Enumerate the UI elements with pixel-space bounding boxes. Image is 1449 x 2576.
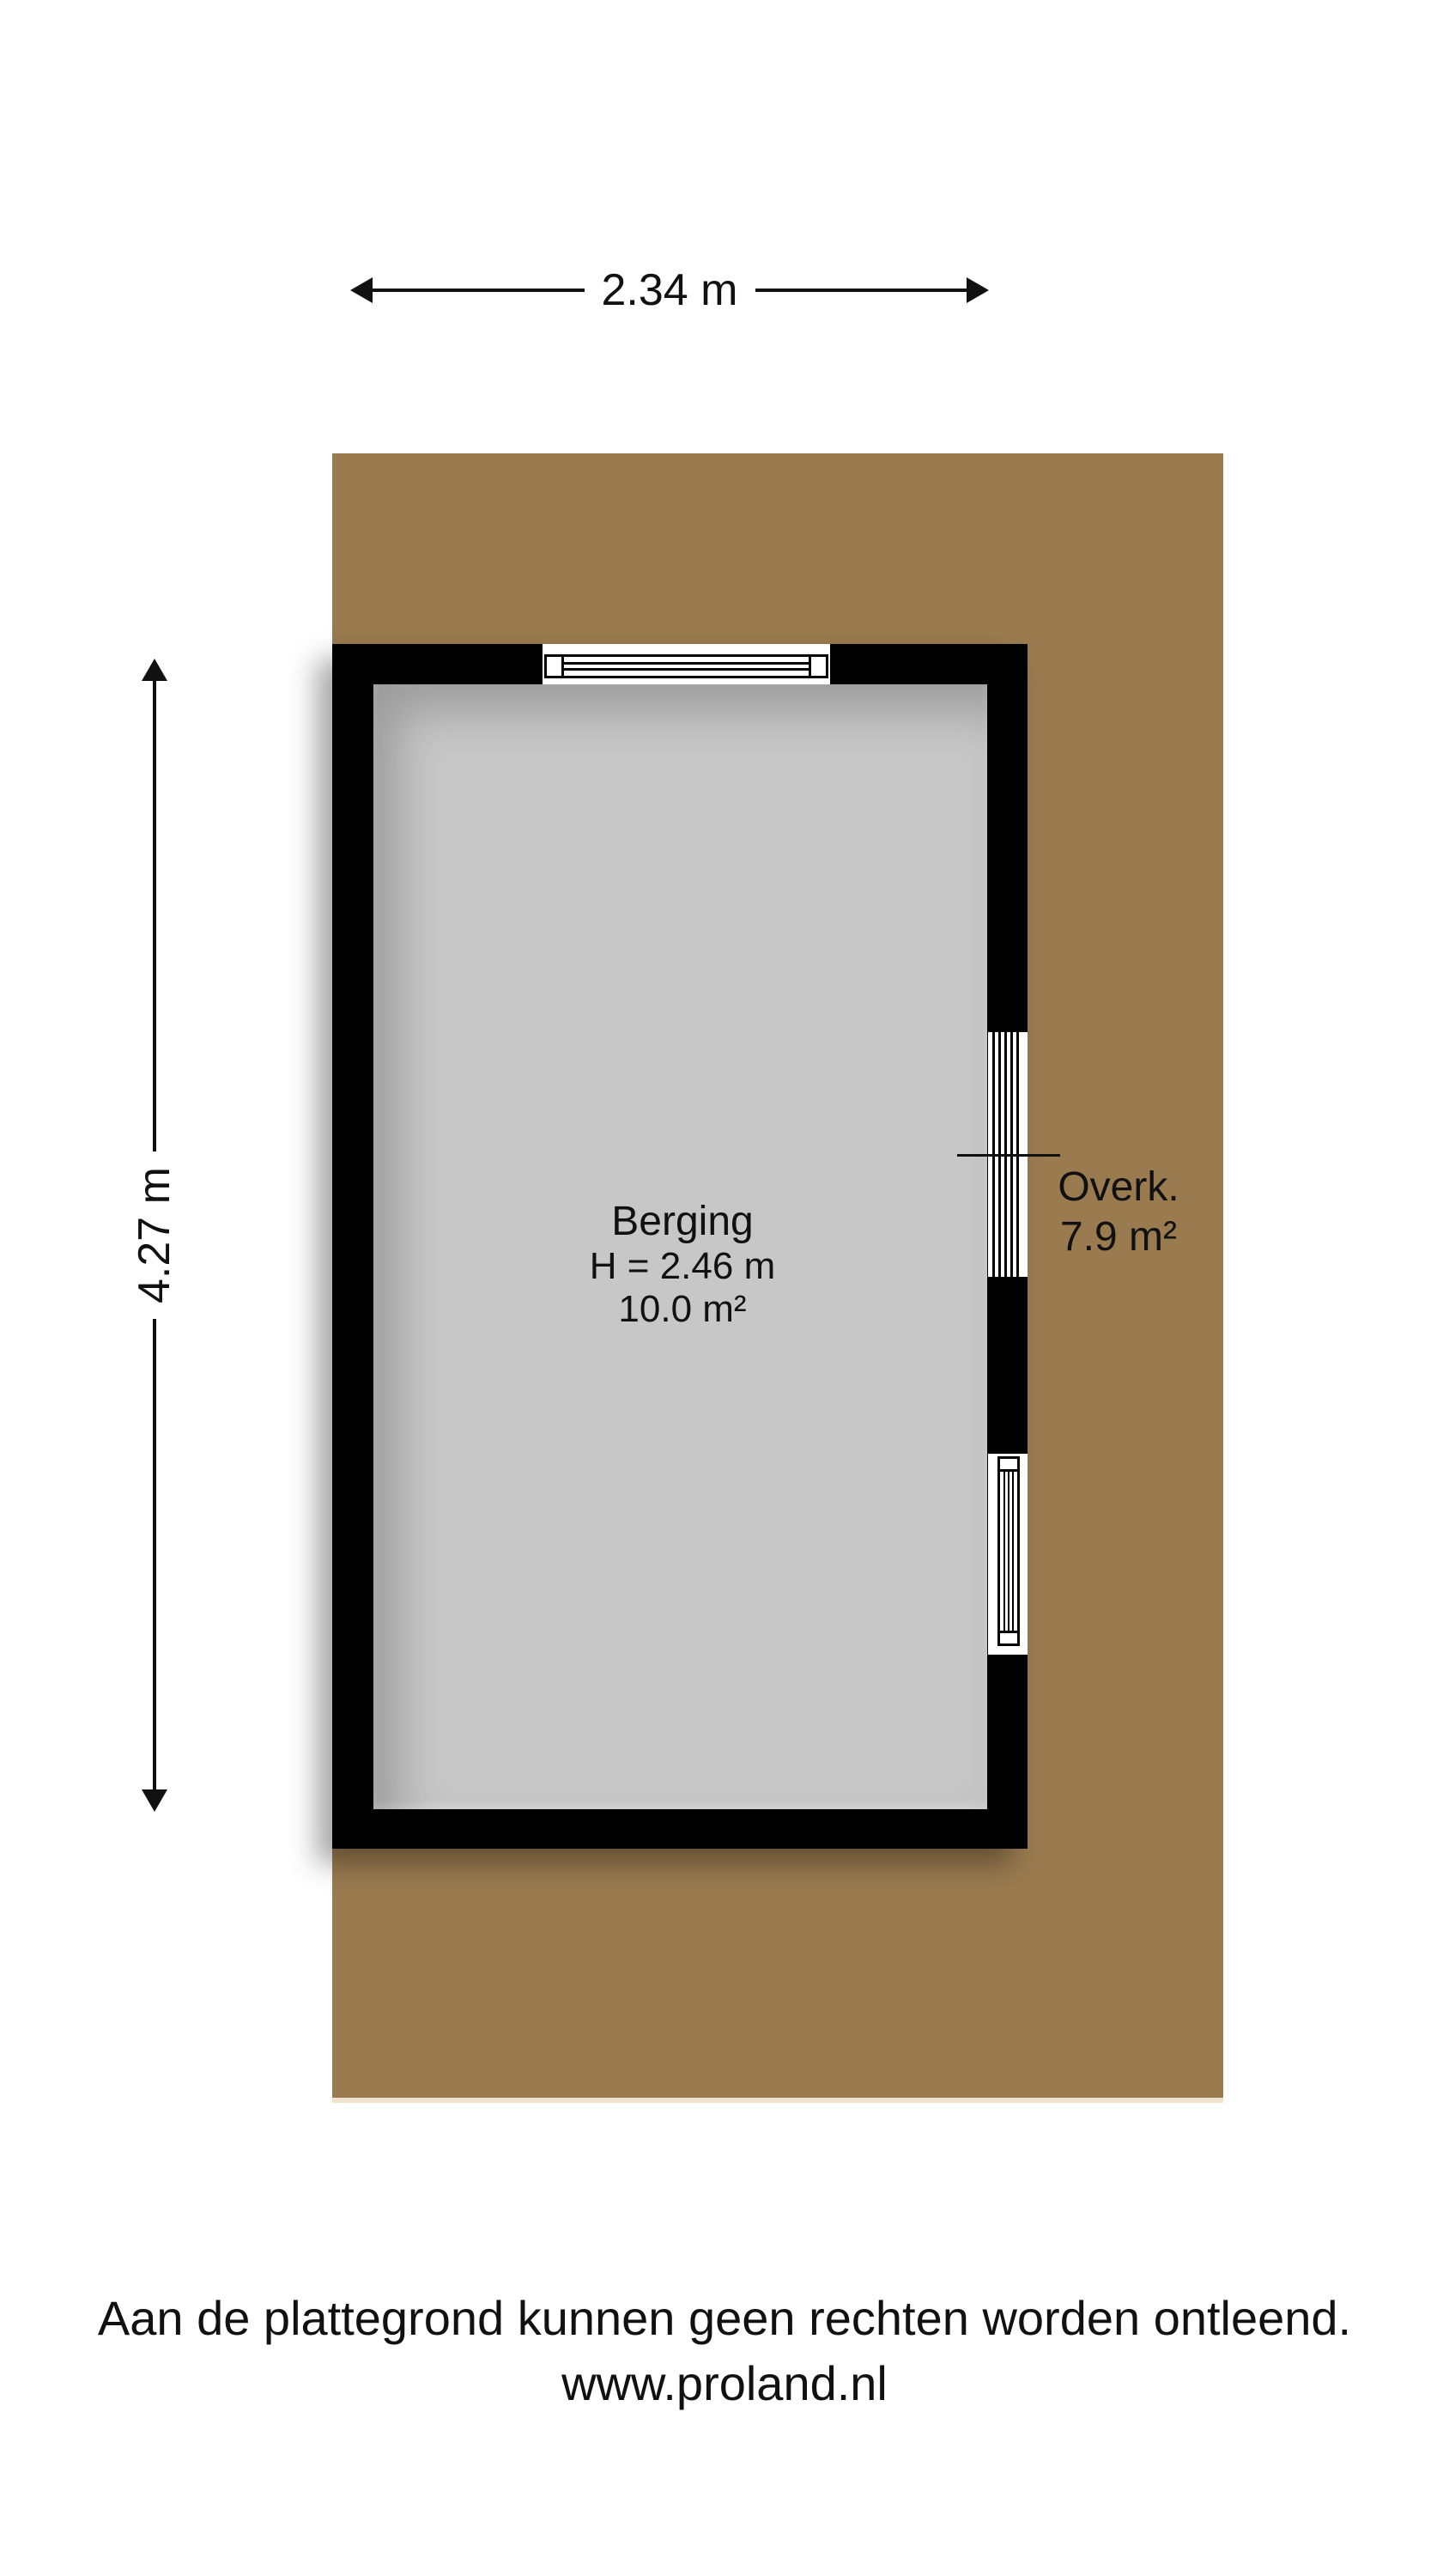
room-area: 10.0 m²: [511, 1288, 854, 1331]
dimension-line: [373, 289, 585, 292]
dimension-line: [755, 289, 967, 292]
window-right-frame: [997, 1456, 1020, 1646]
room-label-overk: Overk. 7.9 m²: [1033, 1163, 1204, 1262]
window-top-glazing: [544, 654, 828, 678]
height-dimension: 4.27 m: [130, 659, 179, 1812]
arrow-down-icon: [142, 1789, 167, 1812]
website-text: www.proland.nl: [0, 2351, 1449, 2416]
overk-leader-line: [957, 1154, 1060, 1157]
room-label-berging: Berging H = 2.46 m 10.0 m²: [511, 1199, 854, 1331]
disclaimer-text: Aan de plattegrond kunnen geen rechten w…: [0, 2286, 1449, 2351]
dimension-line: [153, 1319, 156, 1789]
arrow-left-icon: [350, 277, 373, 303]
window-right: [988, 1454, 1028, 1655]
width-dimension-label: 2.34 m: [602, 268, 738, 313]
arrow-up-icon: [142, 659, 167, 681]
window-jamb: [561, 657, 564, 676]
window-glass-line: [1012, 1472, 1014, 1631]
room-name: Overk.: [1033, 1163, 1204, 1212]
window-glass-line: [564, 662, 809, 665]
floorplan-page: 2.34 m 4.27 m: [0, 0, 1449, 2576]
height-dimension-label: 4.27 m: [132, 1167, 177, 1303]
window-glass-line: [1008, 1472, 1009, 1631]
window-jamb: [1000, 1631, 1017, 1633]
window-glass-line: [564, 668, 809, 671]
room-height: H = 2.46 m: [511, 1245, 854, 1288]
footer: Aan de plattegrond kunnen geen rechten w…: [0, 2286, 1449, 2416]
dimension-line: [153, 681, 156, 1151]
window-glass-line: [1003, 1472, 1005, 1631]
room-name: Berging: [511, 1199, 854, 1245]
arrow-right-icon: [967, 277, 989, 303]
room-area: 7.9 m²: [1033, 1212, 1204, 1262]
width-dimension: 2.34 m: [350, 268, 989, 313]
window-jamb: [809, 657, 811, 676]
